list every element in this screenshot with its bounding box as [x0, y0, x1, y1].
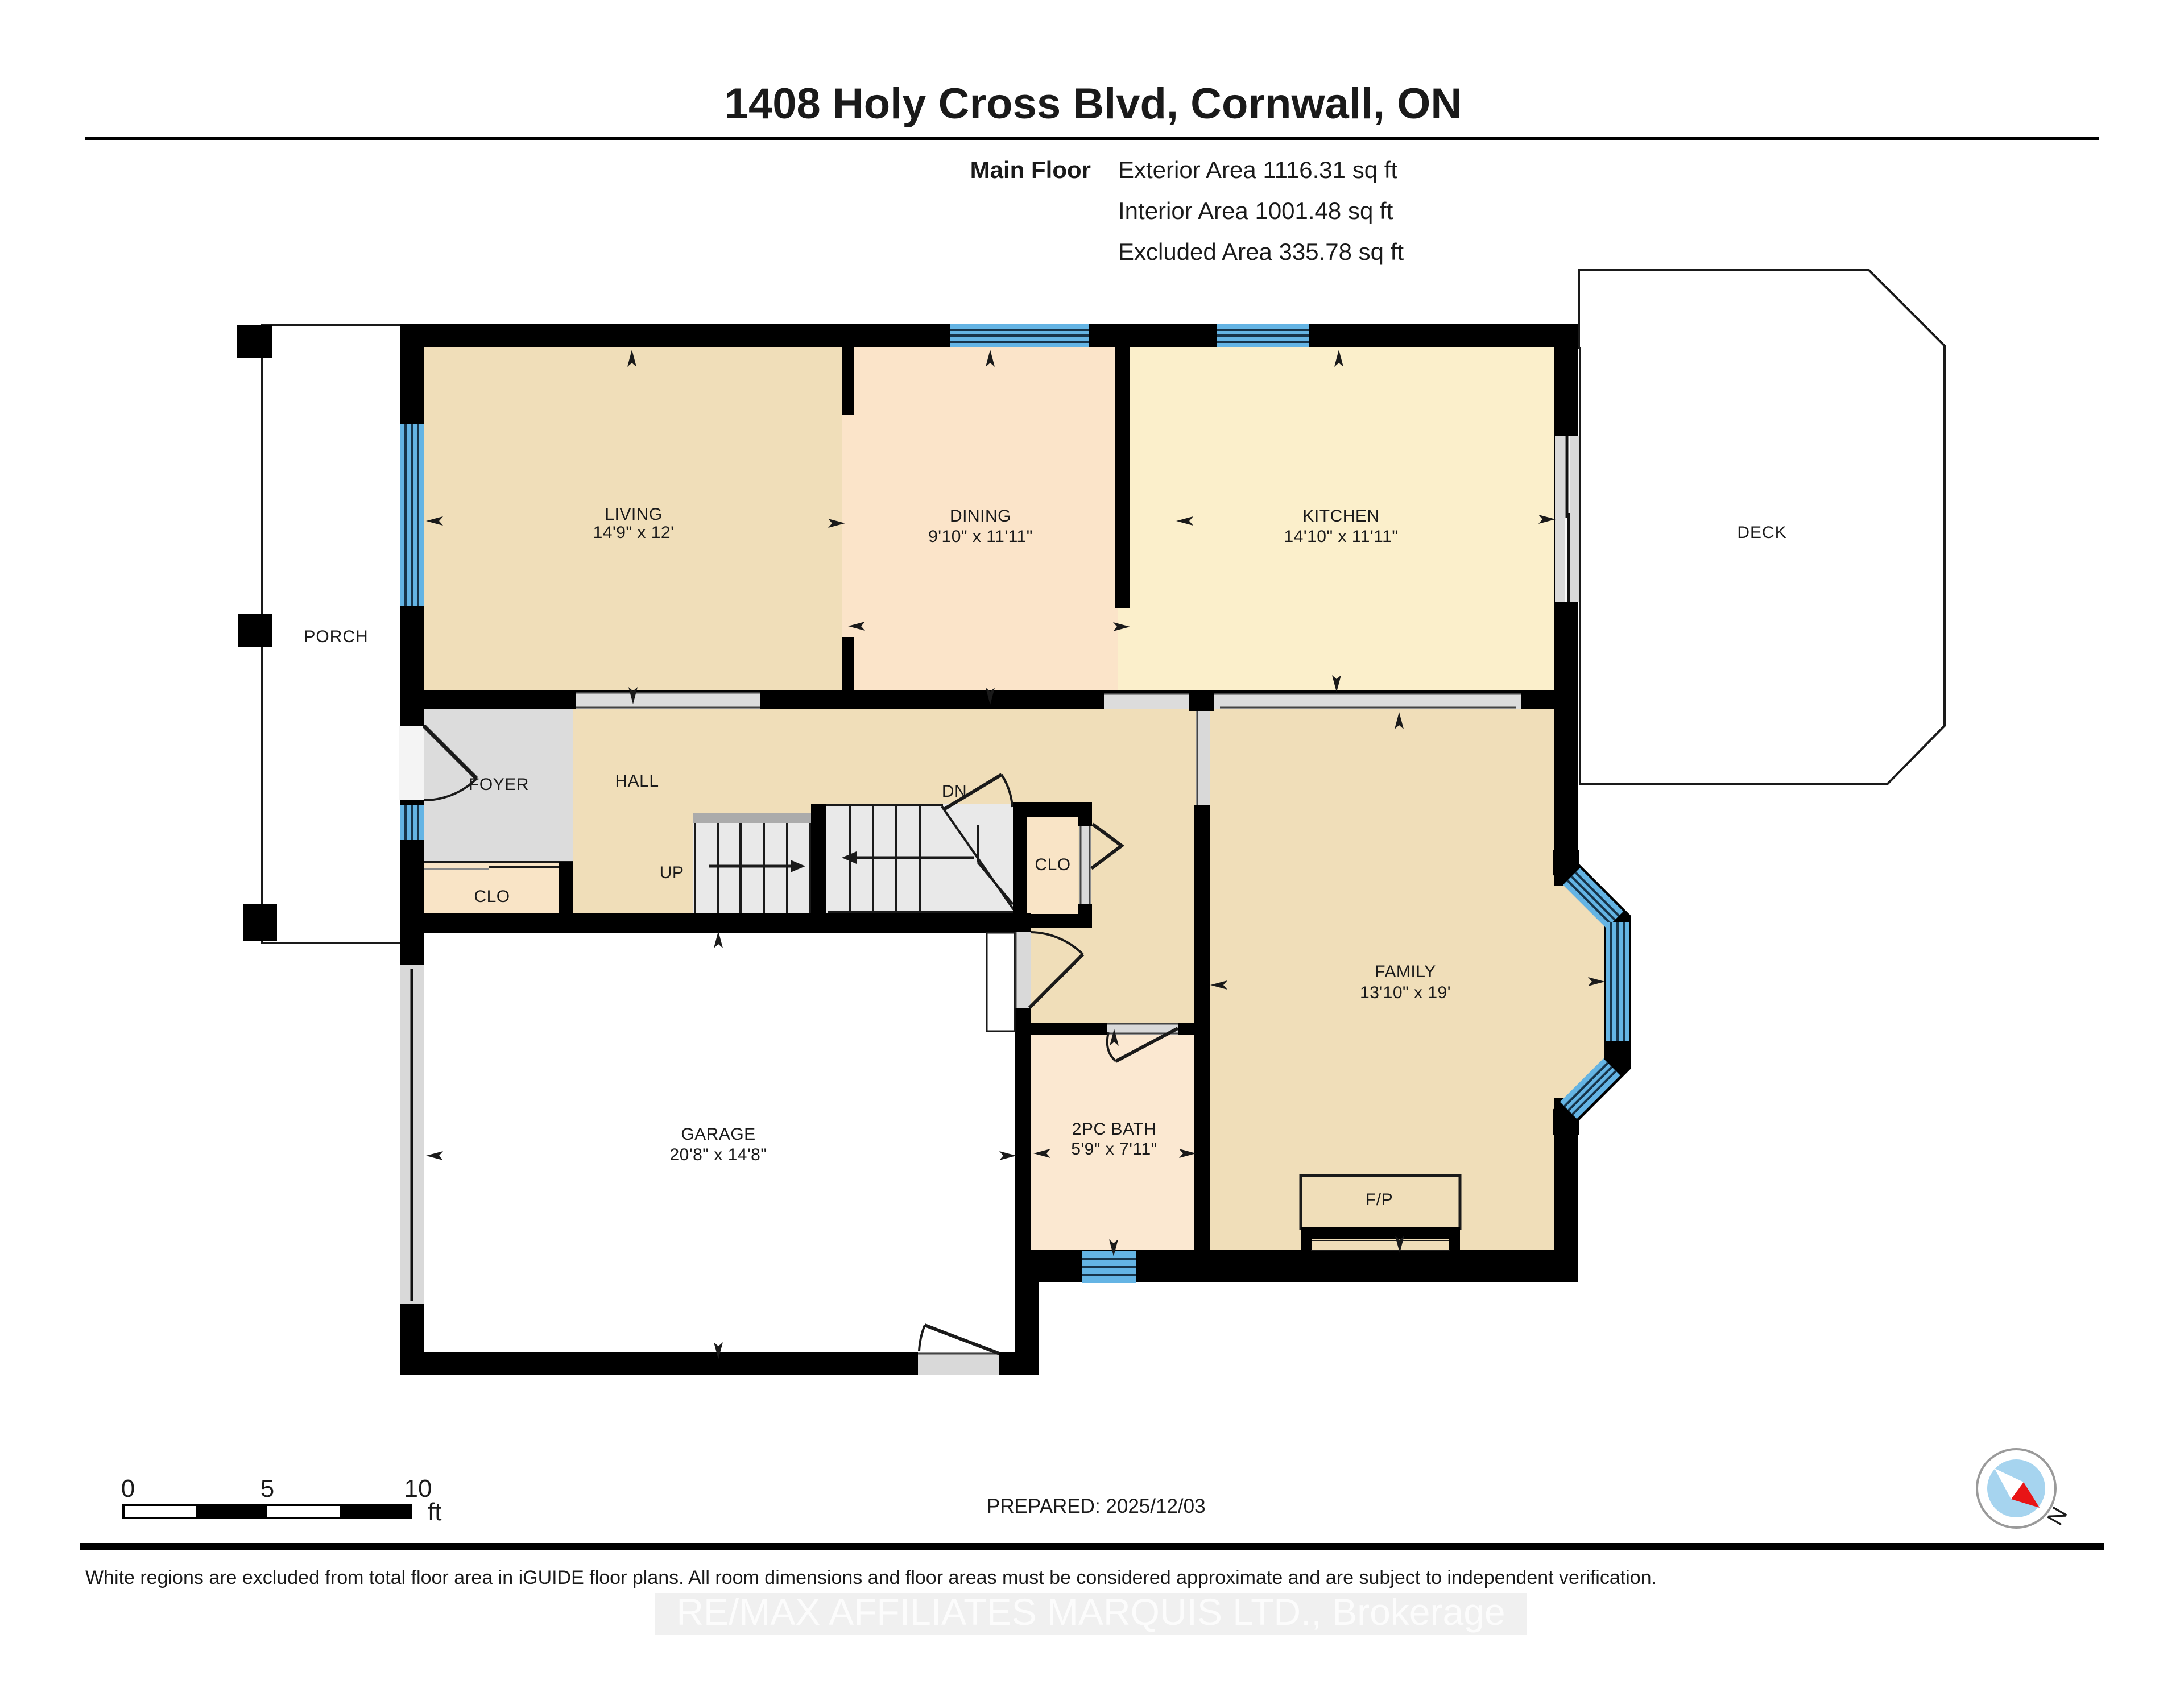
svg-text:GARAGE: GARAGE [681, 1125, 755, 1144]
svg-text:5: 5 [260, 1475, 274, 1503]
svg-text:HALL: HALL [615, 772, 659, 791]
svg-text:PREPARED: 2025/12/03: PREPARED: 2025/12/03 [987, 1495, 1206, 1517]
svg-text:2PC BATH: 2PC BATH [1072, 1120, 1156, 1139]
svg-text:DN: DN [942, 782, 967, 801]
svg-text:Interior Area 1001.48 sq ft: Interior Area 1001.48 sq ft [1118, 197, 1393, 224]
svg-text:DINING: DINING [950, 507, 1011, 526]
svg-text:20'8" x 14'8": 20'8" x 14'8" [669, 1145, 767, 1164]
svg-text:White regions are excluded fro: White regions are excluded from total fl… [85, 1567, 1657, 1588]
svg-text:Excluded Area 335.78 sq ft: Excluded Area 335.78 sq ft [1118, 238, 1404, 265]
svg-text:DECK: DECK [1737, 523, 1786, 542]
svg-text:PORCH: PORCH [304, 627, 368, 646]
svg-text:Exterior Area 1116.31 sq ft: Exterior Area 1116.31 sq ft [1118, 156, 1397, 183]
svg-text:FOYER: FOYER [469, 775, 529, 794]
svg-text:CLO: CLO [1035, 855, 1070, 874]
svg-text:0: 0 [121, 1475, 135, 1503]
svg-text:RE/MAX AFFILIATES MARQUIS LTD.: RE/MAX AFFILIATES MARQUIS LTD., Brokerag… [676, 1591, 1505, 1633]
svg-text:1408 Holy Cross Blvd, Cornwall: 1408 Holy Cross Blvd, Cornwall, ON [725, 80, 1462, 128]
svg-text:13'10" x 19': 13'10" x 19' [1360, 983, 1451, 1002]
svg-text:UP: UP [660, 863, 684, 882]
svg-text:F/P: F/P [1366, 1190, 1393, 1209]
svg-text:KITCHEN: KITCHEN [1302, 507, 1379, 526]
svg-text:ft: ft [428, 1498, 441, 1526]
svg-text:LIVING: LIVING [605, 505, 662, 524]
svg-text:FAMILY: FAMILY [1375, 962, 1436, 981]
svg-text:14'10" x 11'11": 14'10" x 11'11" [1284, 527, 1399, 546]
svg-text:CLO: CLO [474, 887, 510, 906]
svg-text:14'9" x 12': 14'9" x 12' [593, 523, 675, 542]
svg-text:5'9" x 7'11": 5'9" x 7'11" [1071, 1140, 1157, 1159]
svg-text:Main Floor: Main Floor [970, 156, 1091, 183]
svg-text:9'10" x 11'11": 9'10" x 11'11" [928, 527, 1033, 546]
